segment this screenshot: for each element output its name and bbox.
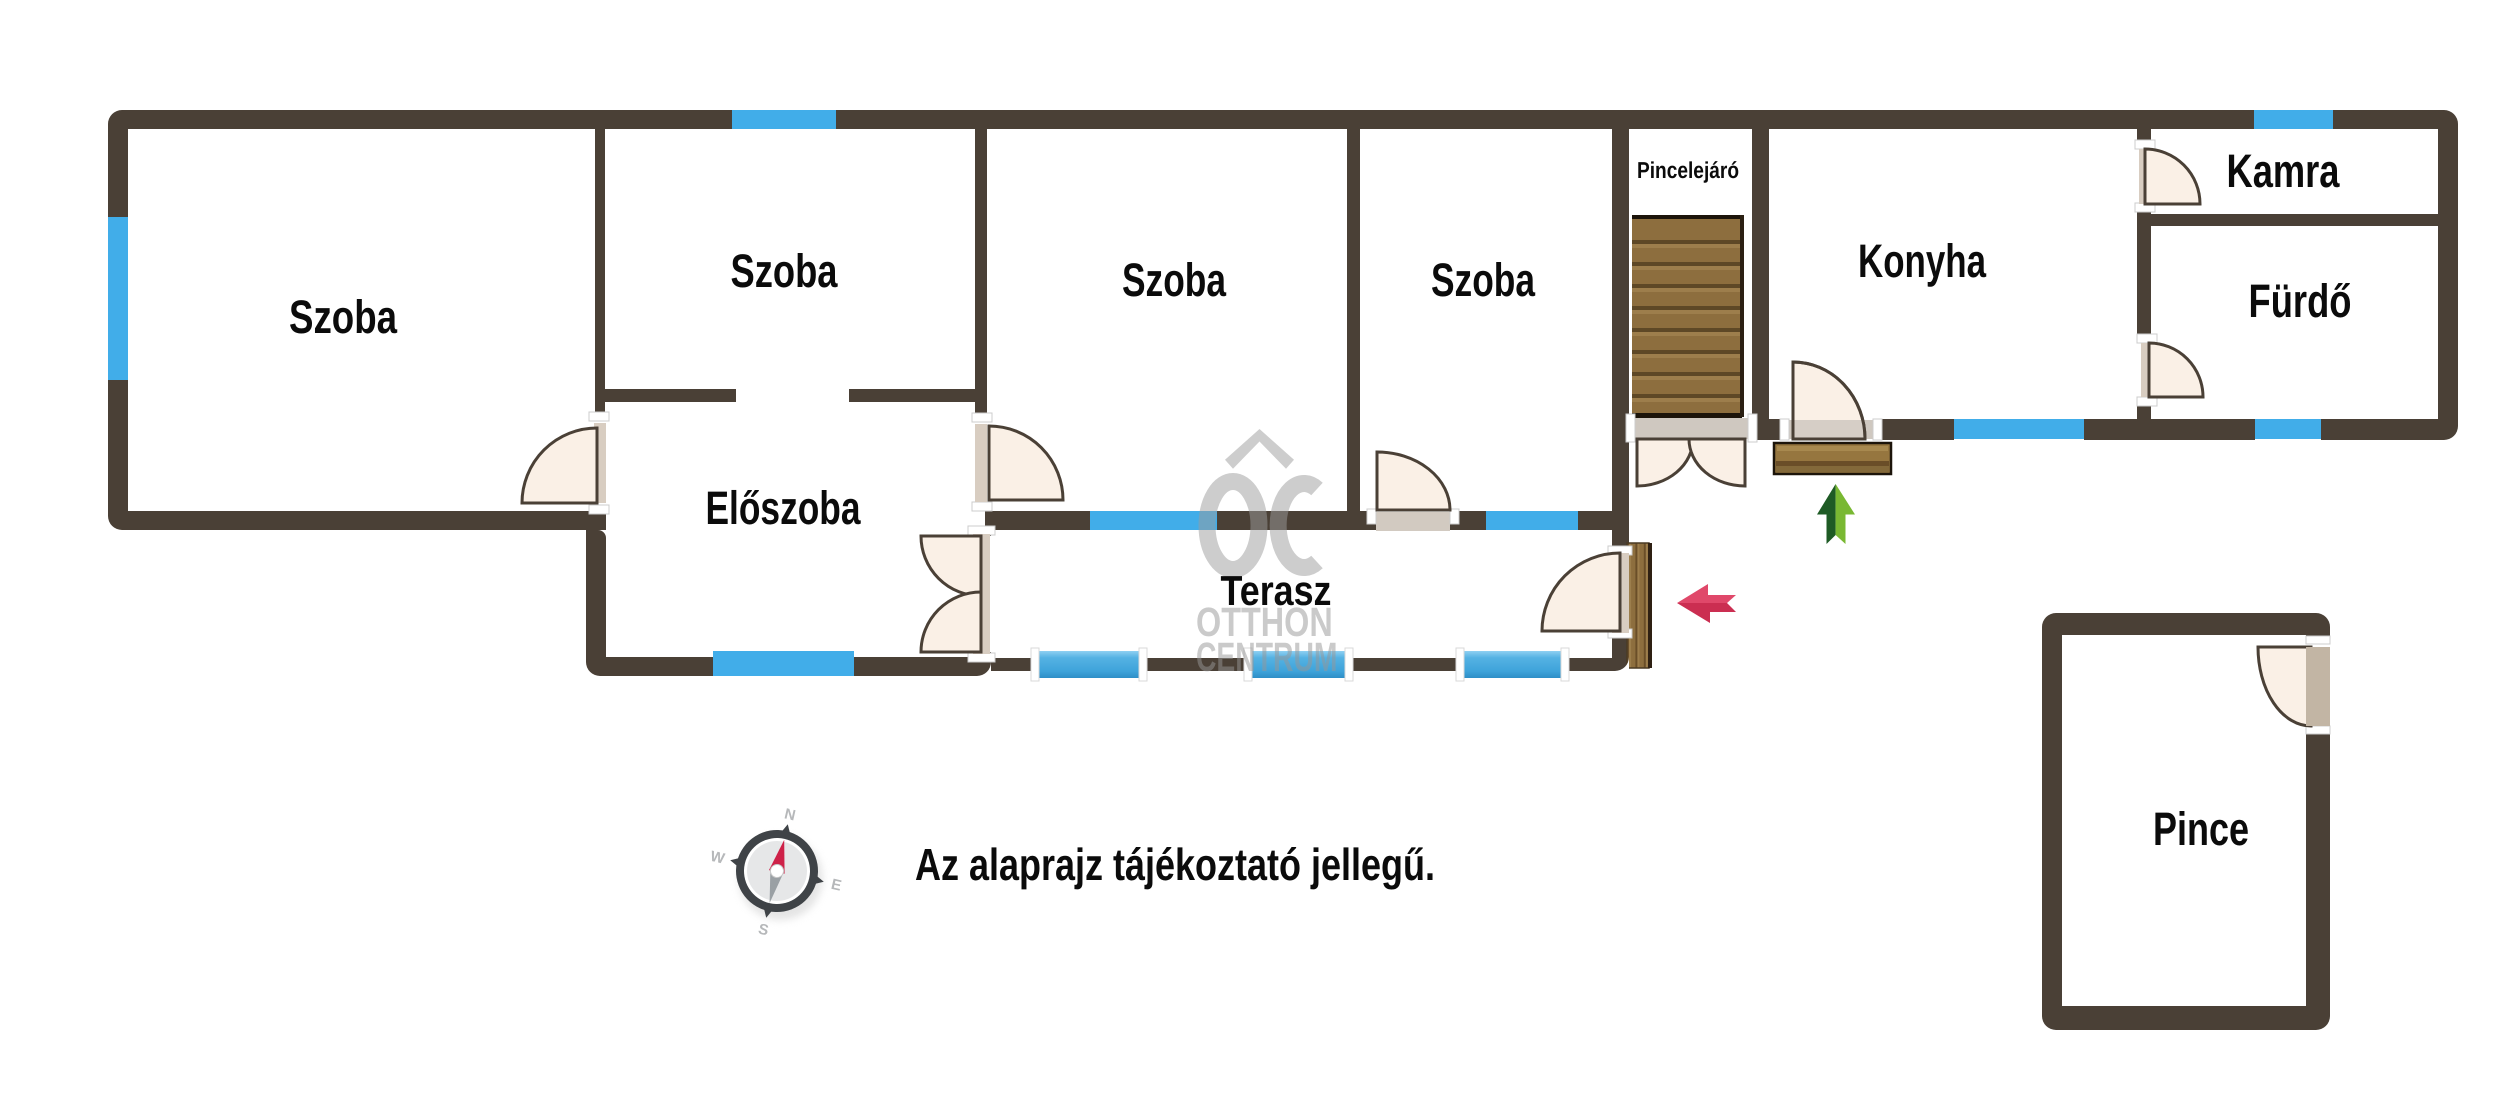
- svg-text:Előszoba: Előszoba: [706, 481, 862, 534]
- svg-text:Kamra: Kamra: [2227, 144, 2341, 197]
- svg-text:Pincelejáró: Pincelejáró: [1637, 157, 1739, 183]
- svg-text:Szoba: Szoba: [731, 244, 839, 297]
- svg-text:Szoba: Szoba: [289, 290, 398, 343]
- svg-text:Konyha: Konyha: [1858, 234, 1987, 287]
- svg-text:Fürdő: Fürdő: [2249, 274, 2352, 327]
- svg-text:CENTRUM: CENTRUM: [1196, 634, 1337, 680]
- svg-text:Pince: Pince: [2153, 802, 2249, 855]
- svg-text:Az alaprajz tájékoztató jelleg: Az alaprajz tájékoztató jellegű.: [915, 839, 1435, 890]
- svg-text:Szoba: Szoba: [1122, 253, 1227, 306]
- svg-text:Terasz: Terasz: [1221, 567, 1332, 614]
- svg-text:Szoba: Szoba: [1431, 253, 1536, 306]
